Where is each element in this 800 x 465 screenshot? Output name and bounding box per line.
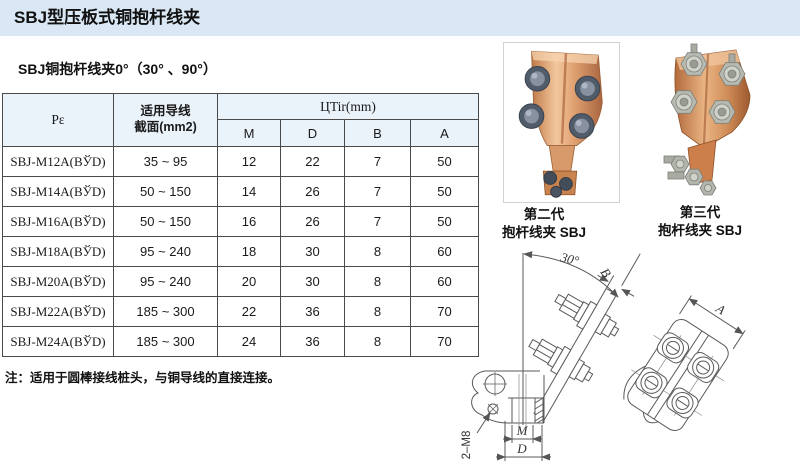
spec-table: Pε 适用导线 截面(mm2) ЦTir(mm) M D B A SBJ-M12… [2, 93, 479, 357]
tilted-plate-group [501, 245, 657, 430]
model-cell: SBJ-M14A(BЎD) [3, 177, 114, 207]
model-cell: SBJ-M18A(BЎD) [3, 237, 114, 267]
a-cell: 50 [411, 207, 479, 237]
gen3-caption-line2: 抱杆线夹 SBJ [645, 222, 755, 240]
col-header-m: M [218, 120, 281, 147]
table-row: SBJ-M12A(BЎD) 35 ~ 95 12 22 7 50 [3, 147, 479, 177]
gen3-caption: 第三代 抱杆线夹 SBJ [645, 204, 755, 240]
model-cell: SBJ-M24A(BЎD) [3, 327, 114, 357]
table-header-row-1: Pε 适用导线 截面(mm2) ЦTir(mm) [3, 94, 479, 120]
d-cell: 26 [281, 177, 345, 207]
gen2-product-photo [503, 42, 620, 203]
b-cell: 8 [345, 327, 411, 357]
gen2-caption-line2: 抱杆线夹 SBJ [494, 224, 594, 242]
col-header-model: Pε [3, 94, 114, 147]
m-cell: 12 [218, 147, 281, 177]
catalog-page: SBJ型压板式铜抱杆线夹 SBJ铜抱杆线夹0°（30° 、90°） Pε 适用导… [0, 0, 800, 465]
a-cell: 50 [411, 147, 479, 177]
d-cell: 36 [281, 327, 345, 357]
body-outline [472, 371, 544, 423]
section-cell: 50 ~ 150 [114, 207, 218, 237]
d-cell: 30 [281, 237, 345, 267]
a-cell: 50 [411, 177, 479, 207]
footnote: 注：适用于圆棒接线桩头，与铜导线的直接连接。 [5, 367, 280, 386]
m-cell: 16 [218, 207, 281, 237]
m-cell: 20 [218, 267, 281, 297]
b-cell: 7 [345, 207, 411, 237]
wire-header-line2: 截面(mm2) [114, 120, 217, 136]
col-header-dimensions-group: ЦTir(mm) [218, 94, 479, 120]
b-cell: 8 [345, 297, 411, 327]
gen2-caption-line1: 第二代 [494, 206, 594, 224]
model-cell: SBJ-M20A(BЎD) [3, 267, 114, 297]
section-cell: 185 ~ 300 [114, 327, 218, 357]
angle-label: 30° [558, 249, 580, 268]
model-cell: SBJ-M22A(BЎD) [3, 297, 114, 327]
wire-header-line1: 适用导线 [114, 104, 217, 120]
m-cell: 18 [218, 237, 281, 267]
dim-label-d: D [516, 441, 527, 456]
b-cell: 7 [345, 177, 411, 207]
gen2-clamp-illustration [504, 43, 619, 202]
plate-bolt-2 [524, 331, 598, 390]
hatch-section [535, 398, 543, 423]
dim-label-m: M [516, 423, 529, 438]
page-title: SBJ型压板式铜抱杆线夹 [0, 0, 800, 36]
gen3-caption-line1: 第三代 [645, 204, 755, 222]
plate-bolt-1 [550, 286, 624, 345]
col-header-wire-section: 适用导线 截面(mm2) [114, 94, 218, 147]
section-cell: 35 ~ 95 [114, 147, 218, 177]
col-header-b: B [345, 120, 411, 147]
section-cell: 50 ~ 150 [114, 177, 218, 207]
m-cell: 22 [218, 297, 281, 327]
gen3-clamp-illustration [628, 40, 768, 205]
col-header-a: A [411, 120, 479, 147]
model-cell: SBJ-M12A(BЎD) [3, 147, 114, 177]
col-header-d: D [281, 120, 345, 147]
table-row: SBJ-M20A(BЎD) 95 ~ 240 20 30 8 60 [3, 267, 479, 297]
b-cell: 8 [345, 237, 411, 267]
title-band: SBJ型压板式铜抱杆线夹 [0, 0, 800, 36]
m-cell: 24 [218, 327, 281, 357]
section-subtitle: SBJ铜抱杆线夹0°（30° 、90°） [18, 59, 217, 79]
d-cell: 22 [281, 147, 345, 177]
d-cell: 30 [281, 267, 345, 297]
d-cell: 36 [281, 297, 345, 327]
b-cell: 8 [345, 267, 411, 297]
section-cell: 95 ~ 240 [114, 237, 218, 267]
section-cell: 185 ~ 300 [114, 297, 218, 327]
m-cell: 14 [218, 177, 281, 207]
d-cell: 26 [281, 207, 345, 237]
b-cell: 7 [345, 147, 411, 177]
table-row: SBJ-M16A(BЎD) 50 ~ 150 16 26 7 50 [3, 207, 479, 237]
table-row: SBJ-M24A(BЎD) 185 ~ 300 24 36 8 70 [3, 327, 479, 357]
gen2-caption: 第二代 抱杆线夹 SBJ [494, 206, 594, 242]
technical-drawing: 30° B M D 2–M8 A [440, 245, 800, 465]
thread-label: 2–M8 [461, 431, 473, 460]
table-row: SBJ-M18A(BЎD) 95 ~ 240 18 30 8 60 [3, 237, 479, 267]
plan-view-group [613, 290, 754, 444]
plan-bolts [632, 330, 723, 420]
table-row: SBJ-M22A(BЎD) 185 ~ 300 22 36 8 70 [3, 297, 479, 327]
section-cell: 95 ~ 240 [114, 267, 218, 297]
model-cell: SBJ-M16A(BЎD) [3, 207, 114, 237]
gen3-product-photo [628, 40, 768, 205]
table-row: SBJ-M14A(BЎD) 50 ~ 150 14 26 7 50 [3, 177, 479, 207]
